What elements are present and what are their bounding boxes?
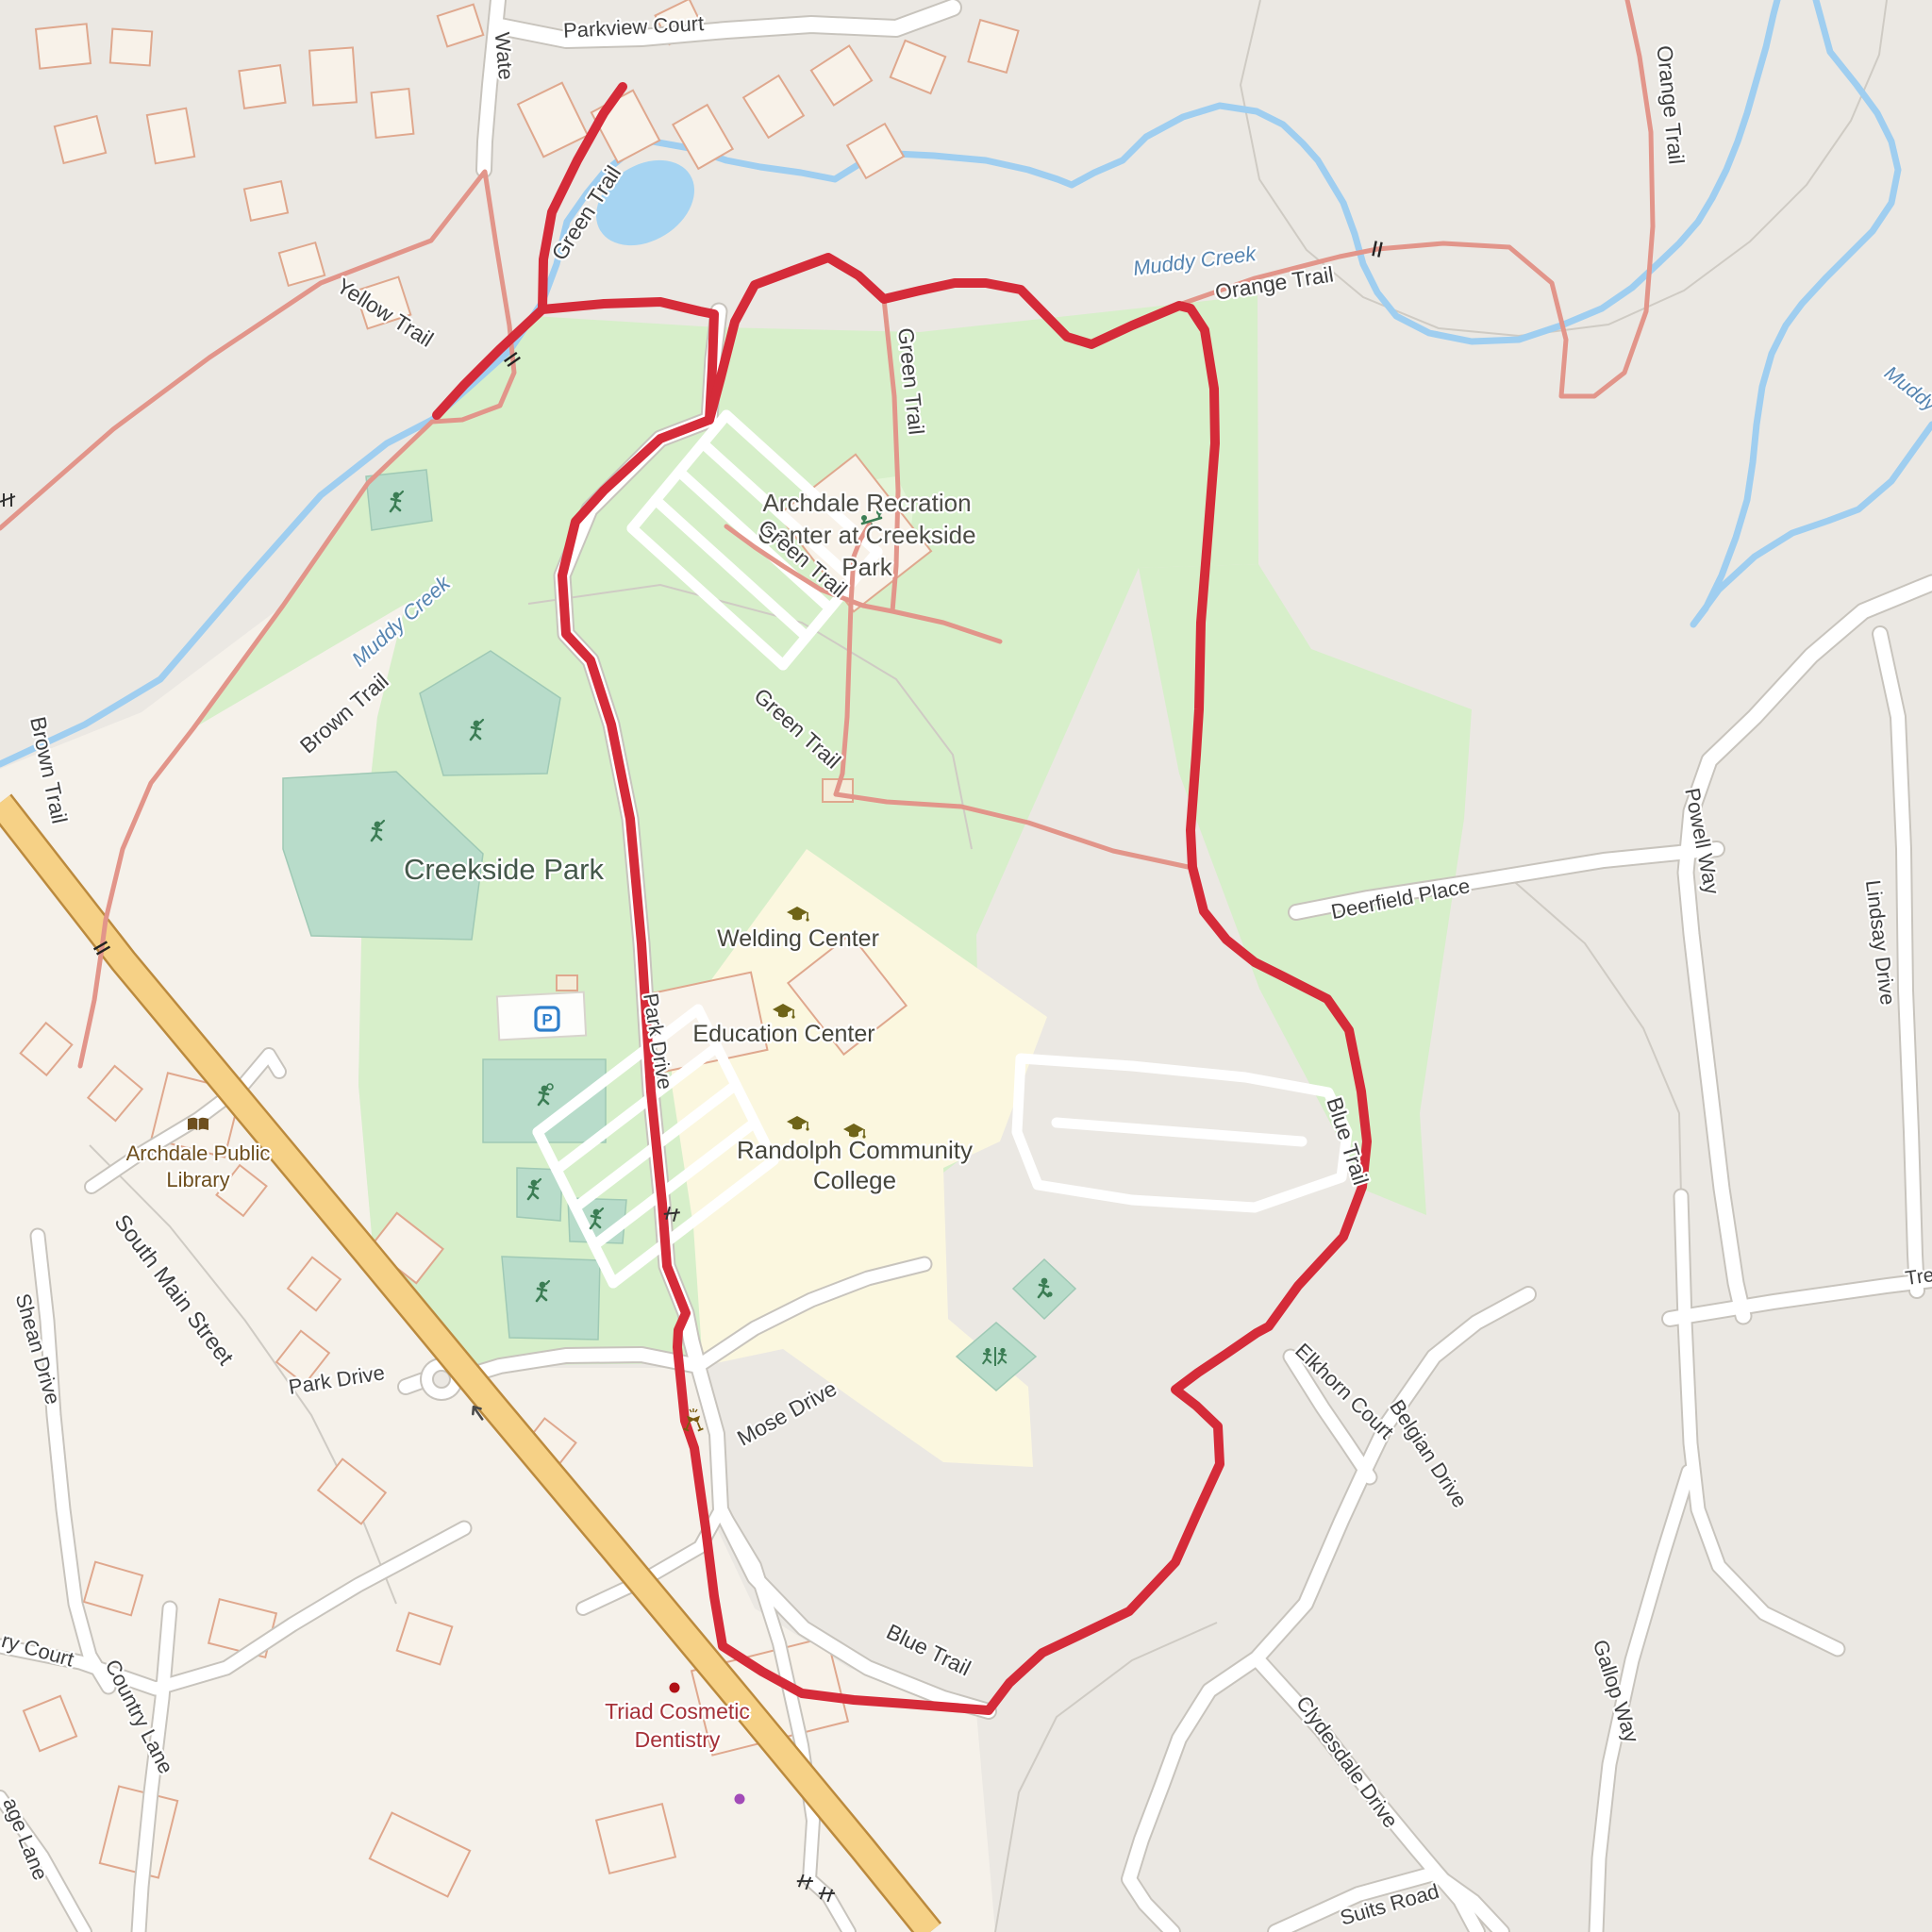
map-label: Tre — [1904, 1264, 1932, 1290]
poi-dot-red — [670, 1683, 680, 1693]
svg-text:P: P — [541, 1011, 552, 1029]
map-label: Dentistry — [635, 1727, 721, 1752]
house — [36, 24, 91, 68]
map-label: Library — [166, 1168, 229, 1191]
map-label: Welding Center — [717, 925, 879, 952]
parking-icon[interactable]: P — [536, 1008, 558, 1030]
map-label: Triad Cosmetic — [605, 1699, 750, 1724]
map-label: College — [813, 1166, 896, 1194]
roundabout-island — [433, 1371, 450, 1388]
house — [239, 65, 285, 108]
house — [147, 108, 194, 164]
ballfield-6 — [502, 1257, 600, 1340]
map-label: Archdale Recration — [762, 489, 971, 517]
house — [110, 29, 152, 66]
poi-dot-purple — [735, 1794, 745, 1805]
map-viewport[interactable]: PParkview CourtWateYellow TrailGreen Tra… — [0, 0, 1932, 1932]
house — [244, 181, 288, 221]
house — [309, 47, 357, 105]
map-canvas[interactable]: PParkview CourtWateYellow TrailGreen Tra… — [0, 0, 1932, 1932]
map-label: Park — [841, 553, 892, 581]
map-label: Education Center — [692, 1021, 874, 1047]
map-label: Randolph Community — [737, 1136, 973, 1164]
map-label: Creekside Park — [404, 853, 604, 886]
map-label: Wate — [491, 31, 518, 81]
house — [372, 89, 414, 138]
park-shed-2 — [557, 975, 577, 991]
map-label: Archdale Public — [126, 1141, 271, 1165]
